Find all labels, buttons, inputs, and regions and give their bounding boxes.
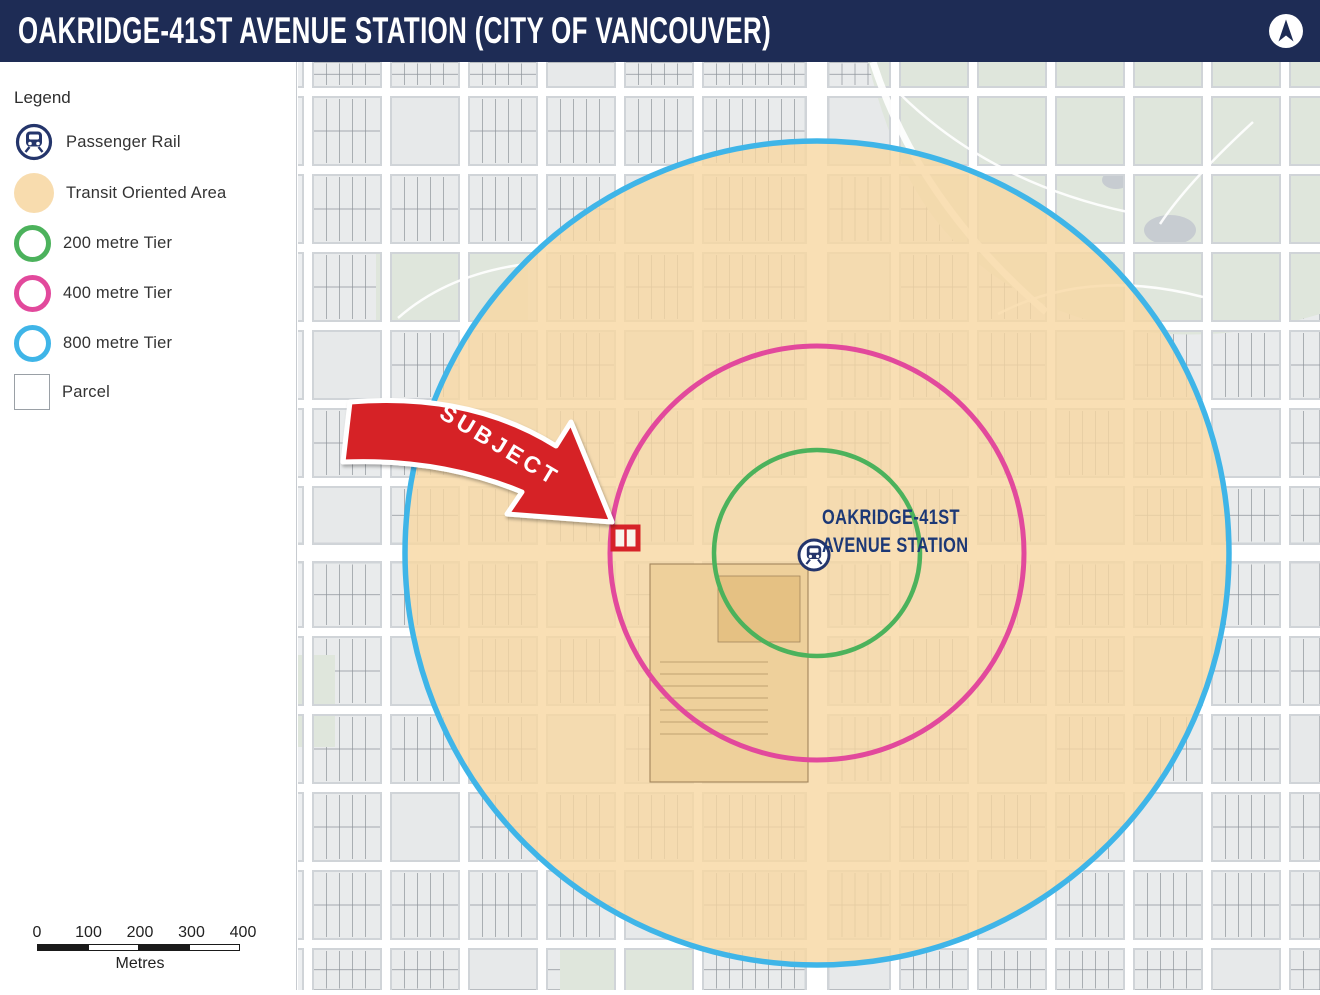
title-bar: OAKRIDGE-41ST AVENUE STATION (CITY OF VA… (0, 0, 1320, 62)
legend-item-parcel: Parcel (14, 372, 110, 412)
scale-bar-ticks: 0 100 200 300 400 (37, 924, 243, 942)
tier-800-swatch (14, 325, 51, 362)
legend-item-label: 400 metre Tier (63, 284, 172, 303)
scale-bar: 0 100 200 300 400 Metres (37, 924, 243, 973)
legend-item-label: 800 metre Tier (63, 334, 172, 353)
scale-bar-segments (37, 944, 243, 951)
scale-tick: 100 (75, 924, 102, 942)
tier-400-swatch (14, 275, 51, 312)
tier-200-swatch (14, 225, 51, 262)
legend-item-label: Parcel (62, 383, 110, 402)
legend-item-label: Passenger Rail (66, 133, 181, 152)
legend-item-label: 200 metre Tier (63, 234, 172, 253)
legend-item-200-metre-tier: 200 metre Tier (14, 223, 172, 263)
legend-item-passenger-rail: Passenger Rail (14, 122, 181, 162)
north-arrow-icon (1267, 12, 1305, 50)
legend-item-transit-oriented-area: Transit Oriented Area (14, 173, 226, 213)
scale-bar-unit: Metres (37, 955, 243, 973)
scale-tick: 400 (230, 924, 257, 942)
page-title: OAKRIDGE-41ST AVENUE STATION (CITY OF VA… (18, 10, 771, 52)
legend-panel: Legend Passenger Rail Transit Oriented A… (0, 62, 297, 990)
mall-area (650, 564, 808, 782)
parcel-swatch (14, 374, 50, 410)
map-area: OAKRIDGE-41ST AVENUE STATION SUBJECT (298, 62, 1320, 990)
transit-oriented-area-swatch (14, 173, 54, 213)
scale-tick: 300 (178, 924, 205, 942)
scale-tick: 0 (33, 924, 42, 942)
subject-parcel (613, 527, 638, 549)
legend-item-800-metre-tier: 800 metre Tier (14, 323, 172, 363)
legend-title: Legend (14, 88, 71, 108)
legend-item-label: Transit Oriented Area (66, 184, 226, 203)
passenger-rail-icon (14, 122, 54, 162)
scale-tick: 200 (127, 924, 154, 942)
map-canvas: OAKRIDGE-41ST AVENUE STATION SUBJECT (298, 62, 1320, 990)
legend-item-400-metre-tier: 400 metre Tier (14, 273, 172, 313)
